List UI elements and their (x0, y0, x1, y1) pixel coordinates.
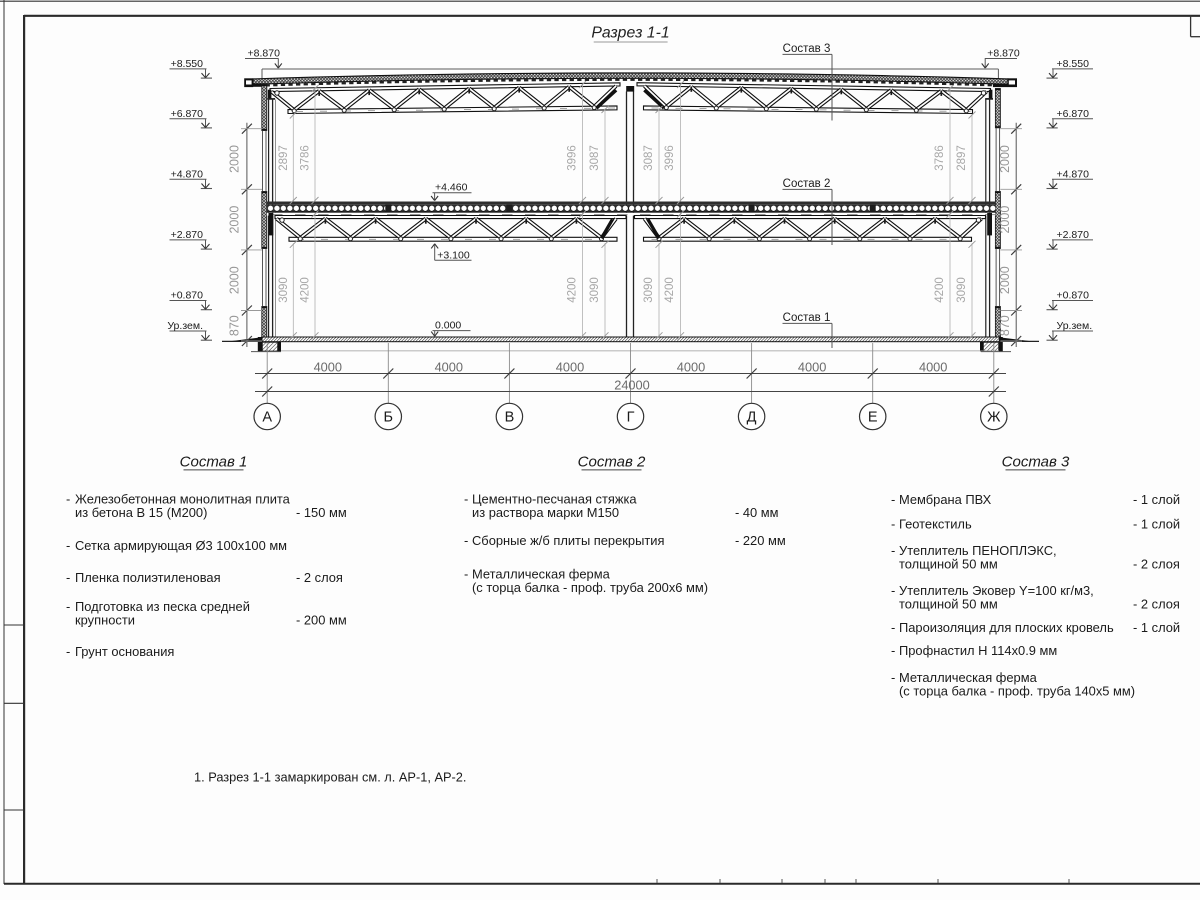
svg-text:3090: 3090 (956, 277, 968, 303)
svg-text:4200: 4200 (934, 277, 946, 303)
svg-text:- 200 мм: - 200 мм (296, 612, 347, 627)
svg-text:Д: Д (747, 410, 757, 426)
svg-text:+8.550: +8.550 (171, 58, 204, 70)
svg-text:870: 870 (998, 315, 1012, 336)
svg-text:-: - (464, 492, 468, 507)
svg-text:Профнастил Н 114х0.9 мм: Профнастил Н 114х0.9 мм (899, 643, 1057, 658)
svg-text:Геотекстиль: Геотекстиль (899, 517, 972, 532)
svg-text:2000: 2000 (998, 145, 1012, 173)
svg-text:+3.100: +3.100 (437, 249, 470, 261)
svg-text:-: - (66, 492, 70, 507)
svg-text:4200: 4200 (567, 277, 579, 303)
svg-text:870: 870 (227, 315, 241, 336)
svg-text:Состав 1: Состав 1 (783, 312, 831, 324)
svg-text:Состав 2: Состав 2 (783, 178, 831, 190)
svg-text:-: - (66, 538, 70, 553)
svg-text:- 2 слоя: - 2 слоя (1133, 597, 1180, 612)
svg-text:Пароизоляция для плоских крове: Пароизоляция для плоских кровель (899, 620, 1114, 635)
svg-text:- 1 слой: - 1 слой (1133, 517, 1180, 532)
svg-text:-: - (891, 492, 895, 507)
svg-text:+0.870: +0.870 (171, 290, 204, 302)
svg-text:3996: 3996 (664, 145, 676, 171)
svg-text:3087: 3087 (589, 145, 601, 171)
svg-text:2000: 2000 (998, 206, 1012, 234)
svg-text:24000: 24000 (614, 377, 650, 392)
svg-text:В: В (505, 410, 515, 426)
svg-text:+6.870: +6.870 (171, 108, 204, 120)
svg-text:Сборные ж/б плиты перекрытия: Сборные ж/б плиты перекрытия (472, 533, 664, 548)
svg-text:2897: 2897 (278, 145, 290, 171)
svg-text:(с торца балка - проф. труба 1: (с торца балка - проф. труба 140х5 мм) (899, 684, 1135, 699)
svg-text:Разрез 1-1: Разрез 1-1 (591, 25, 669, 42)
svg-text:Ур.зем.: Ур.зем. (1057, 320, 1093, 332)
svg-text:4000: 4000 (314, 360, 342, 375)
svg-text:крупности: крупности (75, 612, 135, 627)
svg-text:2000: 2000 (227, 145, 241, 173)
svg-text:толщиной 50 мм: толщиной 50 мм (899, 597, 998, 612)
svg-text:из раствора марки М150: из раствора марки М150 (472, 505, 619, 520)
svg-text:А: А (262, 410, 272, 426)
svg-text:4000: 4000 (435, 360, 463, 375)
svg-text:2000: 2000 (227, 206, 241, 234)
svg-text:3087: 3087 (643, 145, 655, 171)
svg-text:4000: 4000 (677, 360, 705, 375)
svg-text:- 2 слоя: - 2 слоя (296, 570, 343, 585)
svg-text:3090: 3090 (278, 277, 290, 303)
svg-text:+0.870: +0.870 (1057, 290, 1090, 302)
svg-text:Г: Г (627, 410, 635, 426)
svg-text:из бетона В 15 (М200): из бетона В 15 (М200) (75, 505, 207, 520)
svg-text:+8.870: +8.870 (248, 48, 281, 60)
svg-text:Ж: Ж (987, 410, 1001, 426)
svg-text:3090: 3090 (589, 277, 601, 303)
svg-text:+8.550: +8.550 (1057, 58, 1090, 70)
svg-text:Грунт основания: Грунт основания (75, 644, 174, 659)
svg-text:-: - (891, 643, 895, 658)
svg-text:4000: 4000 (798, 360, 826, 375)
svg-text:Б: Б (384, 410, 394, 426)
svg-text:1. Разрез 1-1 замаркирован см.: 1. Разрез 1-1 замаркирован см. л. АР-1, … (194, 770, 466, 785)
svg-text:+8.870: +8.870 (987, 48, 1020, 60)
svg-text:4000: 4000 (919, 360, 947, 375)
svg-text:-: - (891, 620, 895, 635)
svg-text:-: - (66, 599, 70, 614)
svg-text:3786: 3786 (934, 145, 946, 171)
svg-text:- 2 слоя: - 2 слоя (1133, 557, 1180, 572)
svg-text:2000: 2000 (998, 266, 1012, 294)
svg-text:-: - (464, 566, 468, 581)
svg-text:+4.870: +4.870 (1057, 169, 1090, 181)
svg-text:- 40 мм: - 40 мм (735, 505, 779, 520)
svg-text:-: - (891, 583, 895, 598)
svg-text:Сетка армирующая Ø3 100х100 мм: Сетка армирующая Ø3 100х100 мм (75, 538, 287, 553)
svg-text:-: - (66, 644, 70, 659)
svg-text:Пленка полиэтиленовая: Пленка полиэтиленовая (75, 570, 221, 585)
svg-text:+2.870: +2.870 (1057, 229, 1090, 241)
svg-text:- 150 мм: - 150 мм (296, 505, 347, 520)
svg-text:4200: 4200 (664, 277, 676, 303)
svg-text:+4.870: +4.870 (171, 169, 204, 181)
svg-text:3996: 3996 (567, 145, 579, 171)
svg-text:2897: 2897 (956, 145, 968, 171)
svg-text:Состав 3: Состав 3 (783, 43, 831, 55)
svg-text:(с торца балка - проф. труба 2: (с торца балка - проф. труба 200х6 мм) (472, 580, 708, 595)
svg-text:3090: 3090 (643, 277, 655, 303)
svg-text:Состав 2: Состав 2 (578, 454, 646, 471)
svg-text:4200: 4200 (300, 277, 312, 303)
svg-text:4000: 4000 (556, 360, 584, 375)
svg-text:-: - (464, 533, 468, 548)
svg-text:3786: 3786 (300, 145, 312, 171)
svg-text:-: - (891, 670, 895, 685)
svg-text:- 1 слой: - 1 слой (1133, 492, 1180, 507)
svg-text:+4.460: +4.460 (435, 182, 468, 194)
svg-text:Ур.зем.: Ур.зем. (167, 320, 203, 332)
svg-text:Е: Е (868, 410, 878, 426)
svg-text:+6.870: +6.870 (1057, 108, 1090, 120)
svg-text:- 1 слой: - 1 слой (1133, 620, 1180, 635)
svg-text:толщиной 50 мм: толщиной 50 мм (899, 557, 998, 572)
svg-text:-: - (66, 570, 70, 585)
svg-text:- 220 мм: - 220 мм (735, 533, 786, 548)
svg-text:2000: 2000 (227, 266, 241, 294)
svg-text:-: - (891, 517, 895, 532)
svg-text:0.000: 0.000 (435, 320, 461, 332)
svg-text:Состав 3: Состав 3 (1002, 454, 1070, 471)
svg-text:+2.870: +2.870 (171, 229, 204, 241)
svg-text:Мембрана ПВХ: Мембрана ПВХ (899, 492, 992, 507)
svg-text:Состав 1: Состав 1 (180, 454, 248, 471)
svg-text:-: - (891, 543, 895, 558)
